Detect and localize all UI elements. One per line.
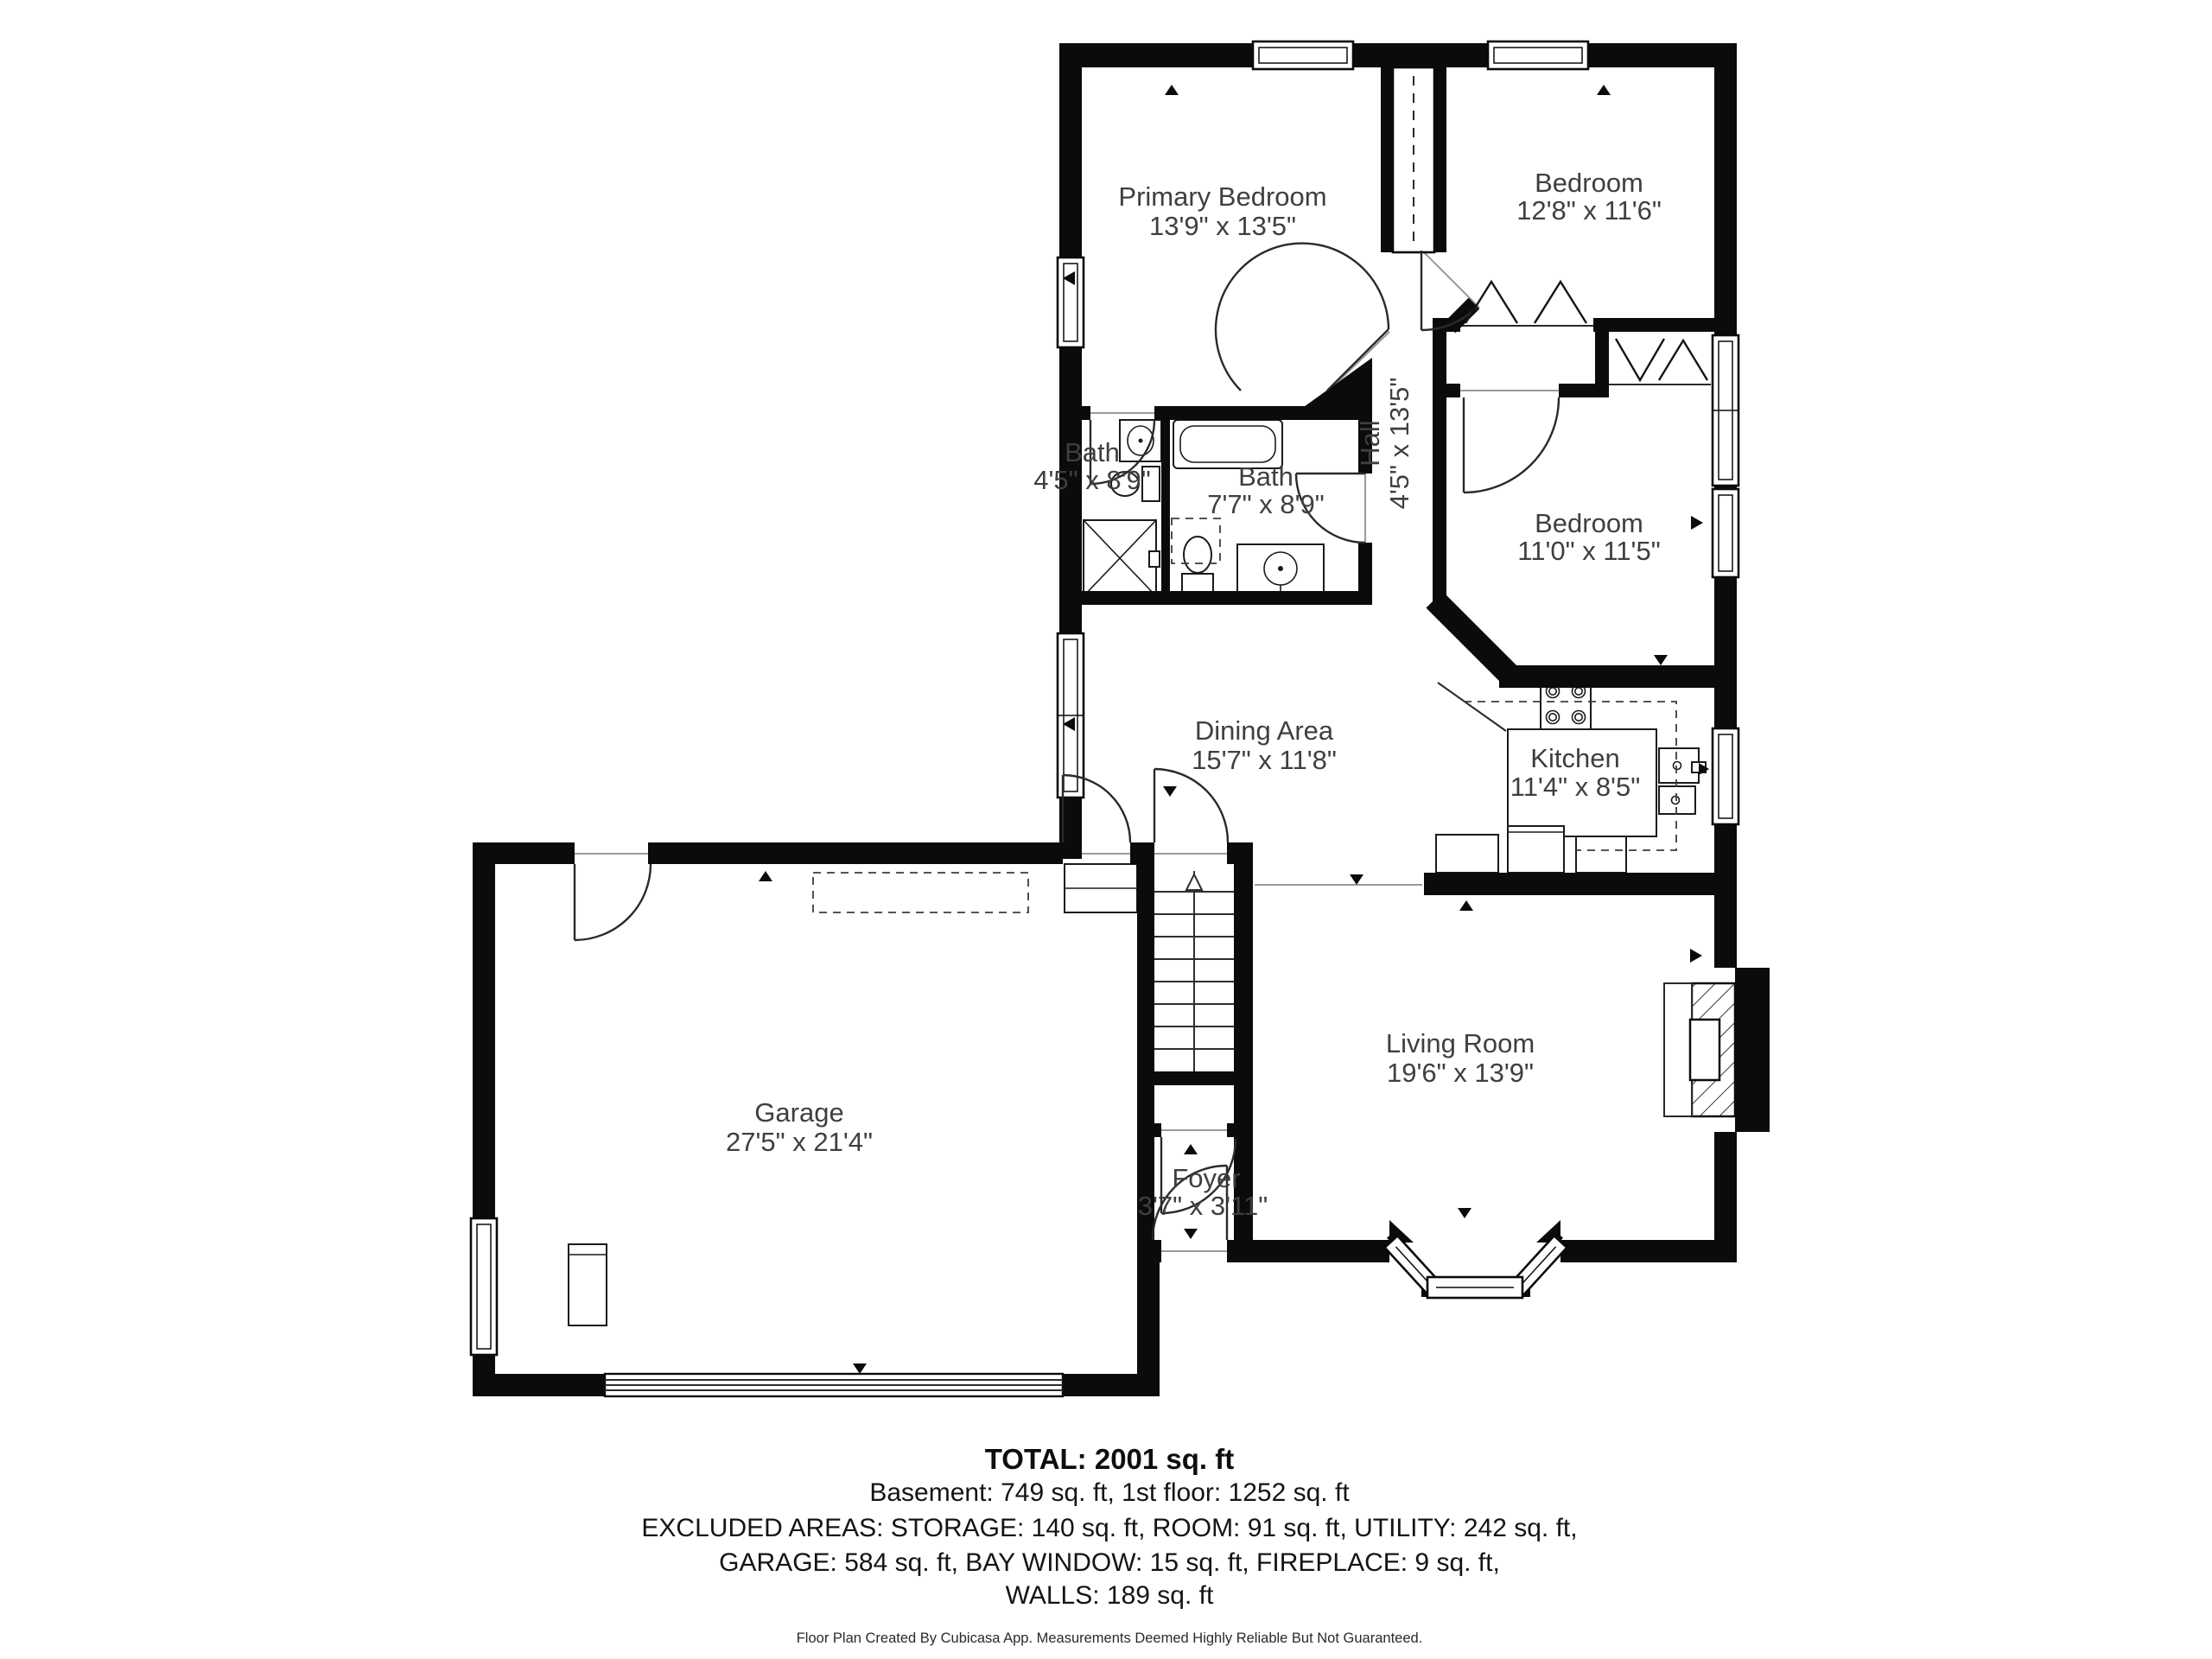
summary-line-1: Basement: 749 sq. ft, 1st floor: 1252 sq… <box>869 1478 1350 1507</box>
door-arc <box>1464 397 1559 493</box>
summary-block: TOTAL: 2001 sq. ft Basement: 749 sq. ft,… <box>641 1443 1577 1646</box>
window <box>1058 633 1084 798</box>
room-label-bath-small: Bath <box>1065 437 1120 467</box>
window <box>1058 257 1084 347</box>
summary-line-4: WALLS: 189 sq. ft <box>1006 1581 1214 1610</box>
window <box>1488 41 1588 69</box>
room-dims-garage: 27'5" x 21'4" <box>726 1127 873 1157</box>
room-dims-foyer: 3'7" x 3'11" <box>1138 1191 1268 1221</box>
room-label-kitchen: Kitchen <box>1530 743 1619 773</box>
stairs-up-arrow <box>1186 874 1202 890</box>
bay-window <box>1385 1236 1567 1298</box>
garage-fixtures <box>569 864 1137 1325</box>
window <box>471 1218 497 1355</box>
door-arc <box>575 864 651 940</box>
room-dims-kitchen: 11'4" x 8'5" <box>1510 772 1640 802</box>
room-label-bedroom-top: Bedroom <box>1535 168 1643 198</box>
room-label-hall: Hall <box>1355 420 1385 466</box>
refrigerator-icon <box>1508 826 1564 873</box>
room-dims-bath-small: 4'5" x 8'9" <box>1033 465 1151 495</box>
stairs <box>1154 871 1234 1071</box>
floor-plan-svg: Primary Bedroom 13'9" x 13'5" Bedroom 12… <box>0 0 2212 1659</box>
window <box>1713 335 1738 486</box>
room-label-bedroom-mid: Bedroom <box>1535 508 1643 538</box>
floor-plan-page: Primary Bedroom 13'9" x 13'5" Bedroom 12… <box>0 0 2212 1659</box>
window <box>1713 489 1738 577</box>
fireplace-icon <box>1664 968 1770 1132</box>
door-arc <box>1154 769 1228 842</box>
counter <box>1436 835 1498 873</box>
summary-footer: Floor Plan Created By Cubicasa App. Meas… <box>797 1630 1423 1646</box>
room-label-living-room: Living Room <box>1386 1028 1535 1058</box>
window <box>1253 41 1353 69</box>
garage-door <box>605 1374 1063 1396</box>
room-dims-bedroom-top: 12'8" x 11'6" <box>1516 195 1662 226</box>
room-dims-hall: 4'5" x 13'5" <box>1384 378 1414 510</box>
summary-line-3: GARAGE: 584 sq. ft, BAY WINDOW: 15 sq. f… <box>719 1548 1500 1577</box>
summary-total: TOTAL: 2001 sq. ft <box>985 1443 1235 1475</box>
storage-dashed <box>813 873 1028 912</box>
room-label-primary-bedroom: Primary Bedroom <box>1118 181 1326 212</box>
room-label-garage: Garage <box>754 1097 843 1128</box>
counter <box>1576 836 1626 873</box>
room-label-bath-main: Bath <box>1238 461 1294 492</box>
closet-rod-icon <box>1616 339 1707 380</box>
toilet-icon <box>1182 574 1213 593</box>
room-label-dining-area: Dining Area <box>1195 715 1334 746</box>
room-dims-dining-area: 15'7" x 11'8" <box>1192 745 1337 775</box>
room-dims-bedroom-mid: 11'0" x 11'5" <box>1517 536 1660 566</box>
room-dims-living-room: 19'6" x 13'9" <box>1387 1058 1534 1088</box>
water-heater-icon <box>569 1244 607 1325</box>
room-label-foyer: Foyer <box>1172 1163 1240 1193</box>
sliding-closet <box>1393 67 1434 252</box>
room-dims-bath-main: 7'7" x 8'9" <box>1207 489 1325 519</box>
closet-rod-icon <box>1465 282 1586 323</box>
room-dims-primary-bedroom: 13'9" x 13'5" <box>1149 211 1296 241</box>
window <box>1713 728 1738 824</box>
summary-line-2: EXCLUDED AREAS: STORAGE: 140 sq. ft, ROO… <box>641 1514 1577 1542</box>
